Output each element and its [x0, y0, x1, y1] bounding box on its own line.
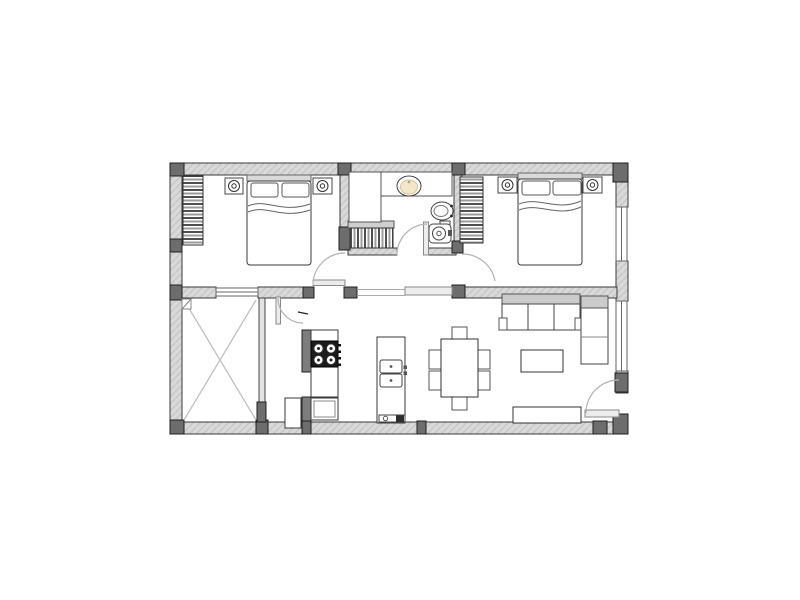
tv-board [513, 407, 581, 423]
bedroom2-door-arc [462, 254, 495, 281]
bed2-pillow-left [522, 181, 550, 195]
bed2-pillow-right [553, 181, 581, 195]
island-base-dark-unit [396, 416, 404, 423]
column-bath-left-cap [339, 227, 350, 250]
dining-chair-bottom [452, 397, 467, 410]
island-sink-drain-2 [390, 379, 393, 382]
stove-knob-3 [338, 357, 342, 360]
bed1-pillow-right [282, 183, 309, 197]
bathroom-door-leaf [424, 222, 429, 255]
bed2-headboard [518, 173, 582, 179]
dining-chair-right-2 [477, 371, 490, 390]
entry-door-arc [586, 380, 619, 413]
wall-middle-b [258, 287, 304, 298]
column-middle-2 [344, 287, 357, 298]
column-top-right [613, 163, 628, 182]
bed1-lamp-left-inner [232, 184, 236, 188]
stove-burner-4-center [330, 359, 333, 362]
island-faucet-1 [404, 366, 408, 370]
stove-knob-1 [338, 344, 342, 347]
column-left-junction [170, 285, 182, 300]
dining-chair-top [452, 327, 467, 340]
column-right-door-jamb [615, 373, 628, 392]
column-bottom-mid-1 [417, 421, 426, 434]
kitchen-appliance [285, 398, 301, 428]
wall-bathroom-bottom-a [348, 248, 397, 255]
kitchen-door-stop-mark [298, 312, 308, 314]
wardrobe-bedroom1 [183, 176, 203, 245]
hall-door-leaf [405, 287, 452, 295]
sofa-seat [502, 304, 580, 330]
stove-burner-3-center [317, 359, 320, 362]
bidet-bowl [433, 227, 446, 240]
column-middle-1 [303, 287, 314, 298]
bed2-lamp-left-inner [505, 183, 509, 187]
column-bottom-mid-2 [302, 421, 311, 434]
floor-plan-page [0, 0, 800, 600]
toilet-hinge-1 [450, 205, 453, 208]
wardrobe-bedroom2 [460, 177, 483, 243]
wall-bathroom-left [340, 175, 349, 227]
kitchen-pier-upper [302, 330, 311, 372]
floor-plan-drawing [0, 0, 800, 600]
bedroom1-door-leaf [313, 280, 345, 286]
sofa-chaise-backrest [581, 296, 608, 308]
wall-right-middle [616, 261, 628, 301]
coffee-table [521, 350, 563, 372]
plan-root [170, 163, 628, 434]
bath-cabinet [350, 228, 393, 248]
kitchen-pier-lower [302, 397, 311, 424]
kitchen-door-arc [278, 298, 303, 323]
column-bottom-left [170, 420, 184, 434]
column-top-bath-right [452, 163, 465, 175]
bidet-control [448, 230, 452, 236]
column-left-mid [170, 239, 182, 252]
island-faucet-2 [404, 372, 408, 376]
dining-chair-right-1 [477, 350, 490, 369]
bath-sink-drain [408, 181, 411, 184]
dining-table [441, 339, 478, 397]
column-top-left [170, 163, 184, 176]
bed2-lamp-right-inner [590, 183, 594, 187]
bed1-headboard [247, 175, 311, 181]
wall-bottom [170, 422, 628, 434]
entry-door-leaf [585, 410, 619, 417]
bed1-pillow-left [251, 183, 278, 197]
stove-burner-2-center [330, 347, 333, 350]
column-bottom-right-2 [593, 421, 607, 434]
bathroom-door-arc [397, 224, 427, 255]
sofa-armrest-left [499, 318, 507, 330]
stove-knob-4 [338, 364, 342, 367]
column-middle-3 [452, 285, 465, 298]
column-partition-cap [257, 402, 266, 422]
bed1-lamp-right-inner [320, 184, 324, 188]
stove-knob-2 [338, 351, 342, 354]
sofa-backrest [502, 294, 580, 304]
stove-burner-1-center [317, 347, 320, 350]
toilet-hinge-2 [450, 215, 453, 218]
island-sink-drain-1 [390, 365, 393, 368]
dining-chair-left-2 [429, 371, 442, 390]
vanity-counter-left [349, 172, 381, 222]
dining-chair-left-1 [429, 350, 442, 369]
